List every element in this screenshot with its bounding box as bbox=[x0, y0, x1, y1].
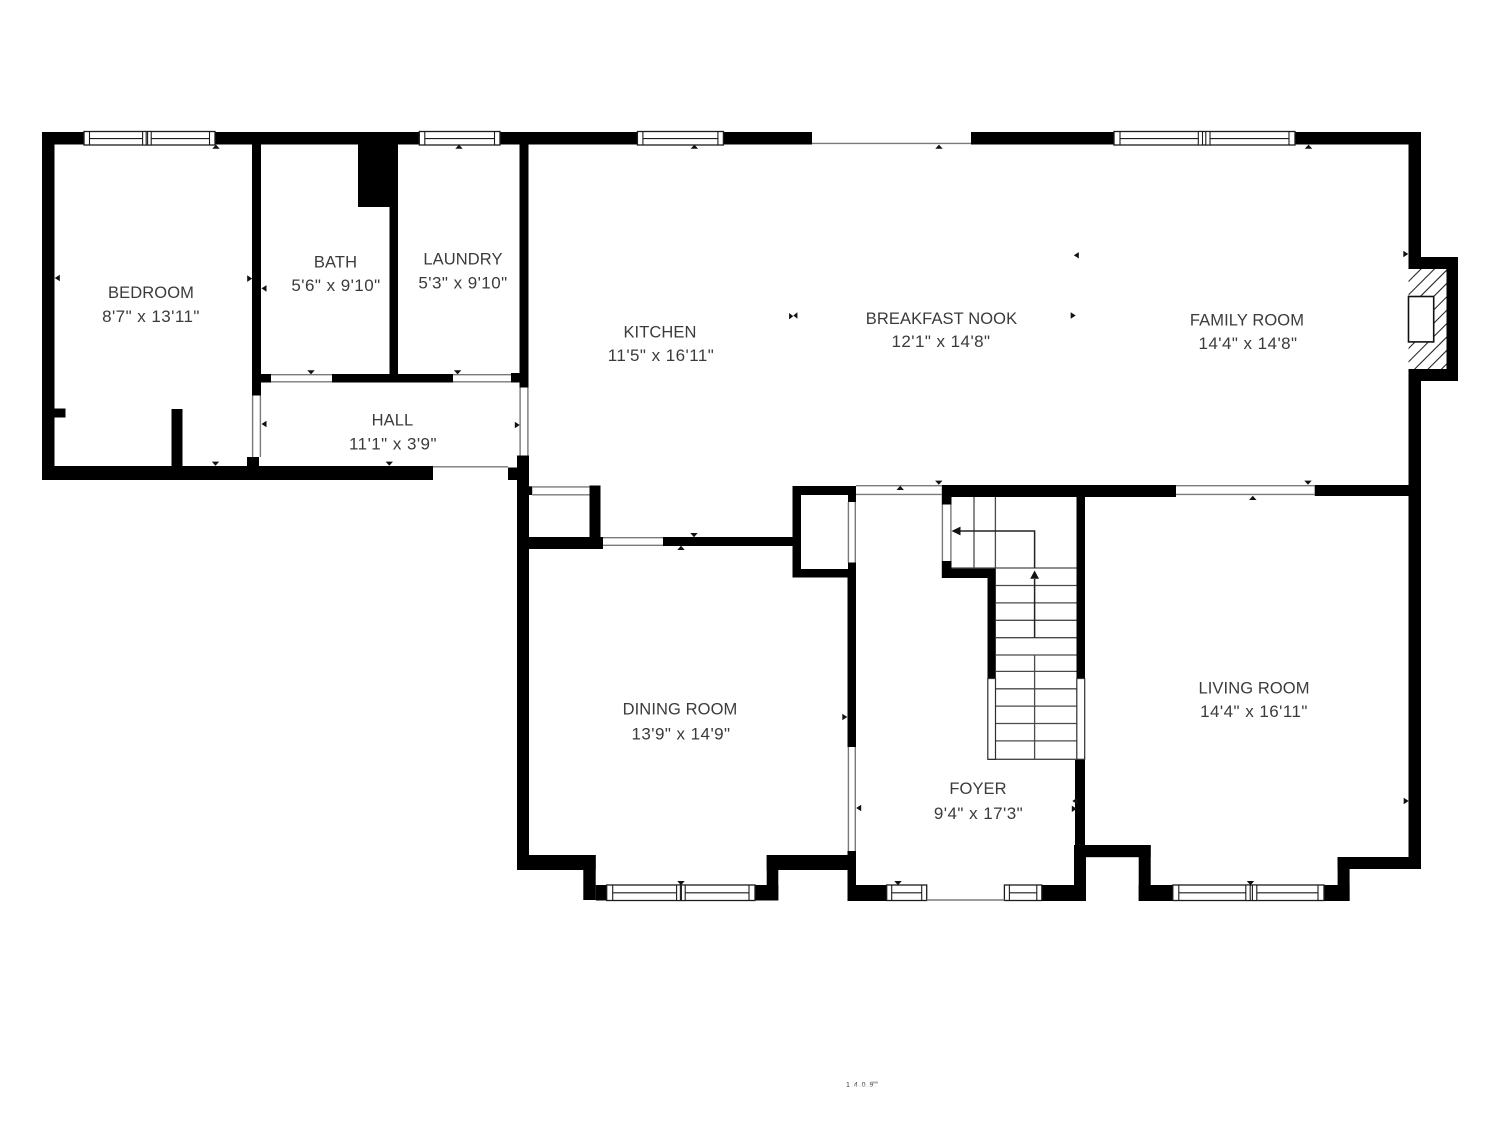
svg-text:FAMILY ROOM: FAMILY ROOM bbox=[1190, 312, 1304, 330]
svg-text:BATH: BATH bbox=[314, 254, 357, 272]
svg-text:14'4" x 14'8": 14'4" x 14'8" bbox=[1198, 334, 1297, 353]
svg-text:DINING ROOM: DINING ROOM bbox=[623, 701, 738, 719]
svg-text:FOYER: FOYER bbox=[949, 780, 1006, 798]
svg-text:KITCHEN: KITCHEN bbox=[623, 324, 696, 342]
svg-text:BEDROOM: BEDROOM bbox=[108, 284, 194, 302]
svg-text:11'1" x 3'9": 11'1" x 3'9" bbox=[349, 435, 437, 454]
svg-text:5'3" x 9'10": 5'3" x 9'10" bbox=[418, 274, 507, 293]
svg-text:13'9" x 14'9": 13'9" x 14'9" bbox=[631, 725, 730, 744]
svg-text:8'7" x 13'11": 8'7" x 13'11" bbox=[102, 307, 200, 326]
svg-text:LIVING ROOM: LIVING ROOM bbox=[1198, 680, 1309, 698]
svg-text:LAUNDRY: LAUNDRY bbox=[423, 251, 502, 269]
svg-text:BREAKFAST NOOK: BREAKFAST NOOK bbox=[866, 310, 1017, 328]
svg-text:12'1" x 14'8": 12'1" x 14'8" bbox=[891, 332, 990, 351]
svg-text:9'4" x 17'3": 9'4" x 17'3" bbox=[934, 804, 1023, 823]
svg-text:1 4 0 9: 1 4 0 9 bbox=[846, 1082, 874, 1089]
svg-text:14'4" x 16'11": 14'4" x 16'11" bbox=[1200, 702, 1308, 721]
svg-text:HALL: HALL bbox=[372, 412, 414, 430]
svg-text:5'6" x 9'10": 5'6" x 9'10" bbox=[291, 276, 380, 295]
svg-text:11'5" x 16'11": 11'5" x 16'11" bbox=[608, 346, 714, 365]
